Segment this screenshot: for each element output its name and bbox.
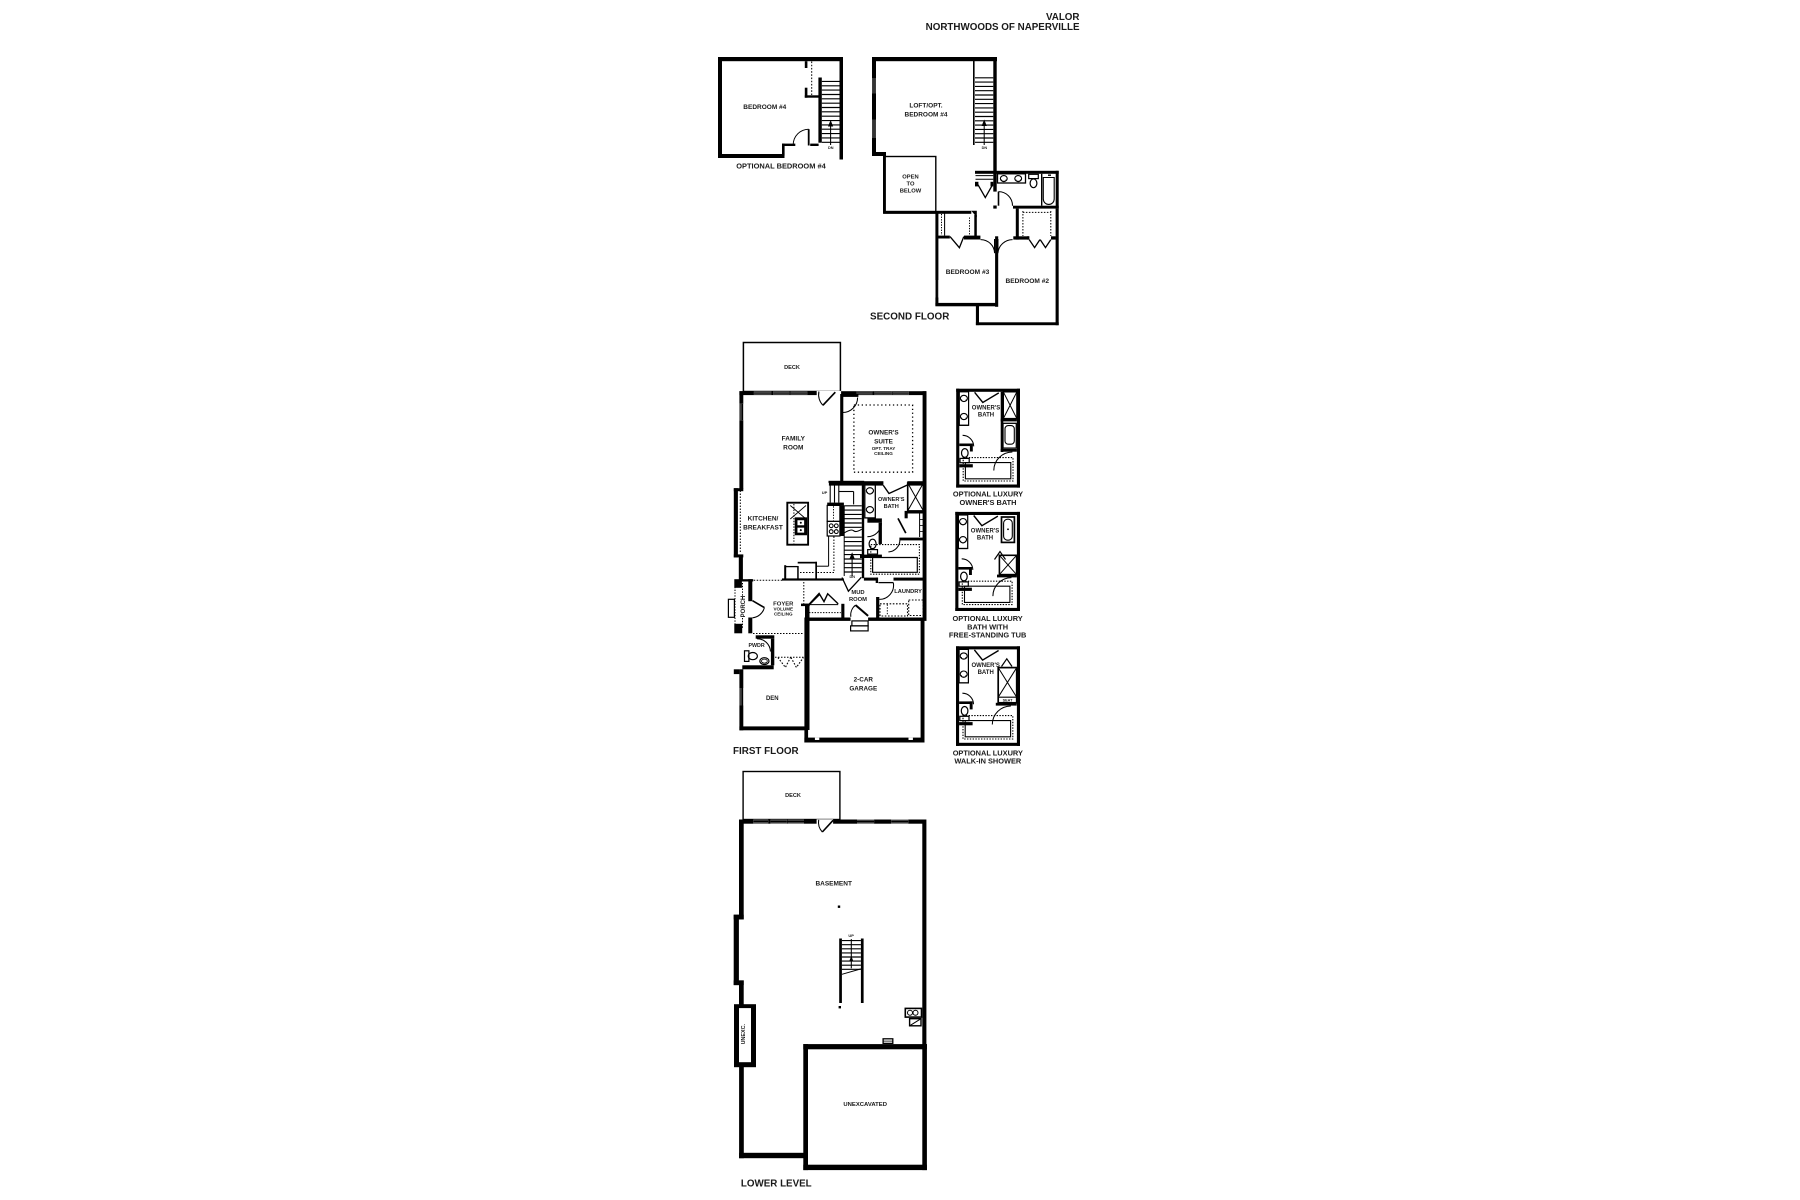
svg-text:SUITE: SUITE xyxy=(874,439,894,446)
svg-text:LAUNDRY: LAUNDRY xyxy=(894,589,922,595)
svg-text:BREAKFAST: BREAKFAST xyxy=(743,525,783,532)
svg-text:OPTIONAL BEDROOM #4: OPTIONAL BEDROOM #4 xyxy=(736,162,826,171)
svg-text:NORTHWOODS OF NAPERVILLE: NORTHWOODS OF NAPERVILLE xyxy=(926,22,1080,33)
svg-text:PWDR: PWDR xyxy=(749,643,765,649)
svg-text:BEDROOM #3: BEDROOM #3 xyxy=(946,269,990,276)
svg-text:BATH: BATH xyxy=(978,412,994,418)
svg-text:BATH: BATH xyxy=(978,670,994,676)
svg-text:DECK: DECK xyxy=(784,365,800,371)
svg-text:BATH: BATH xyxy=(977,536,993,542)
svg-text:CEILING: CEILING xyxy=(774,612,793,617)
svg-text:DN: DN xyxy=(828,146,834,150)
svg-text:DN: DN xyxy=(982,146,988,150)
svg-text:MUD: MUD xyxy=(851,590,864,596)
svg-text:BEDROOM #2: BEDROOM #2 xyxy=(1005,278,1049,285)
svg-text:OWNER'S: OWNER'S xyxy=(971,663,999,669)
svg-text:GARAGE: GARAGE xyxy=(849,685,877,692)
svg-text:OWNER'S: OWNER'S xyxy=(868,430,899,437)
svg-text:2-CAR: 2-CAR xyxy=(854,676,874,683)
svg-text:BEDROOM #4: BEDROOM #4 xyxy=(743,104,786,111)
svg-text:UNEXC.: UNEXC. xyxy=(741,1024,747,1045)
svg-text:CEILING: CEILING xyxy=(874,451,893,456)
svg-text:SEAT: SEAT xyxy=(1003,699,1014,703)
svg-text:UP: UP xyxy=(822,490,828,495)
svg-text:KITCHEN/: KITCHEN/ xyxy=(748,516,779,523)
svg-text:ROOM: ROOM xyxy=(783,445,803,452)
svg-text:OPEN: OPEN xyxy=(902,175,918,181)
svg-text:DN: DN xyxy=(850,575,856,579)
svg-text:LOFT/OPT.: LOFT/OPT. xyxy=(909,103,942,110)
svg-text:FIRST FLOOR: FIRST FLOOR xyxy=(733,746,799,757)
svg-text:DEN: DEN xyxy=(766,696,779,702)
svg-text:TO: TO xyxy=(907,182,915,188)
svg-text:LOWER LEVEL: LOWER LEVEL xyxy=(741,1179,812,1190)
svg-text:BEDROOM #4: BEDROOM #4 xyxy=(905,112,948,119)
svg-text:PORCH: PORCH xyxy=(741,596,747,618)
svg-text:OWNER'S: OWNER'S xyxy=(971,529,999,535)
svg-text:ROOM: ROOM xyxy=(849,597,867,603)
svg-text:OWNER'S: OWNER'S xyxy=(878,497,905,503)
svg-text:OWNER'S BATH: OWNER'S BATH xyxy=(959,498,1016,507)
svg-text:FREE-STANDING TUB: FREE-STANDING TUB xyxy=(949,631,1026,640)
svg-text:FAMILY: FAMILY xyxy=(782,436,806,443)
svg-text:BASEMENT: BASEMENT xyxy=(815,881,852,888)
svg-text:WALK-IN SHOWER: WALK-IN SHOWER xyxy=(954,757,1022,766)
svg-text:OWNER'S: OWNER'S xyxy=(972,406,1000,412)
svg-text:UP: UP xyxy=(848,933,854,938)
svg-text:BATH: BATH xyxy=(884,504,899,510)
svg-text:BELOW: BELOW xyxy=(900,189,922,195)
svg-text:DECK: DECK xyxy=(785,793,801,799)
svg-text:UNEXCAVATED: UNEXCAVATED xyxy=(843,1102,887,1108)
svg-text:SECOND FLOOR: SECOND FLOOR xyxy=(870,311,949,322)
